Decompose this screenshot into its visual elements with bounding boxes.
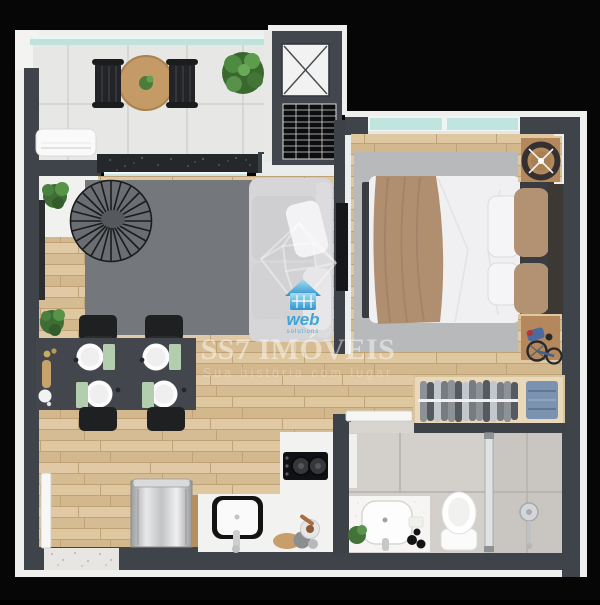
svg-text:SS7 IMÓVEIS: SS7 IMÓVEIS bbox=[201, 333, 396, 366]
svg-text:web: web bbox=[286, 310, 319, 329]
svg-text:Sua história com lugar: Sua história com lugar bbox=[203, 366, 393, 380]
